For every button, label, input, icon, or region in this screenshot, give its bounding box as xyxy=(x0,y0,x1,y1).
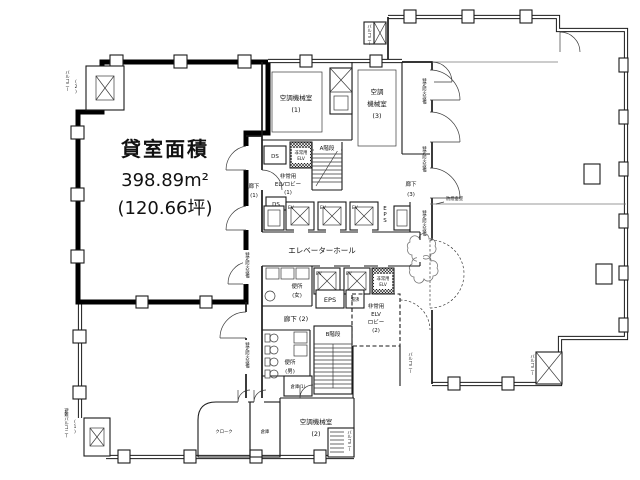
wc-women: 便所 (女) xyxy=(262,266,312,306)
machine-room-2-label: 空調機械室 xyxy=(300,417,333,426)
emergency-elv-label-2: ELV xyxy=(379,282,387,288)
fire-door-tag: 特定防火設備 xyxy=(422,77,427,105)
door-opening xyxy=(242,146,250,170)
ds-shaft xyxy=(330,68,352,114)
column xyxy=(136,296,148,308)
machine-room-1-number: (1) xyxy=(291,106,300,114)
escape-balcony-1: 避難バルコニー (1) xyxy=(64,407,111,456)
emergency-elv-label-1: 非常用 xyxy=(377,275,390,282)
machine-room-1-label: 空調機械室 xyxy=(280,93,313,102)
ev-label: EV xyxy=(320,205,326,211)
column xyxy=(118,450,130,463)
elevator-bank-top: EV EV EV EPS xyxy=(264,202,410,230)
unit-area-m2: 398.89m² xyxy=(121,170,209,191)
window xyxy=(300,55,312,67)
cloak-room: クローク xyxy=(198,390,250,457)
elevator-hall-label: エレベーターホール xyxy=(288,246,356,255)
lobby-1-number: (1) xyxy=(284,190,292,196)
balcony-tag: バルコニー xyxy=(408,352,413,374)
door-opening xyxy=(243,312,250,338)
fire-door-tag: 特定防火設備 xyxy=(245,341,250,369)
corridor-1-label: 廊下 xyxy=(248,182,260,190)
cloak-label: クローク xyxy=(215,429,232,435)
fire-door-tag: 特定防火設備 xyxy=(422,145,427,173)
column xyxy=(584,164,600,184)
fire-door-tags: 特定防火設備 特定防火設備 特定防火設備 xyxy=(420,76,429,244)
corridor-3-number: (3) xyxy=(407,192,415,198)
balcony-2-number: (2) xyxy=(74,79,79,95)
column xyxy=(619,266,628,280)
lobby-2-number: (2) xyxy=(372,328,380,334)
elevator-2: EV xyxy=(318,202,346,230)
emergency-elevator-2: 非常用 ELV xyxy=(372,268,394,294)
window xyxy=(73,330,86,343)
escape-balcony-number: (1) xyxy=(73,419,78,435)
unit-area-tsubo: (120.66坪) xyxy=(117,198,212,219)
machine-room-3: 空調 機械室 (3) xyxy=(358,70,396,146)
storage-label: 倉庫 xyxy=(261,428,270,435)
window xyxy=(238,55,251,68)
balcony-tag: バルコニー xyxy=(530,354,535,376)
column xyxy=(314,450,326,463)
door-opening xyxy=(242,206,250,230)
eps-label: EPS xyxy=(382,206,388,224)
machine-room-3-number: (3) xyxy=(372,112,381,120)
smoke-wall-annotation: 防煙垂壁 xyxy=(446,195,464,202)
core: 空調機械室 (1) 空調 機械室 (3) 廊下 (3) DS 非常用 ELV A… xyxy=(198,55,430,457)
machine-room-3-label-2: 機械室 xyxy=(367,99,387,108)
elevator-hall: エレベーターホール xyxy=(259,229,423,269)
machine-room-3-label-1: 空調 xyxy=(371,87,385,96)
right-wing: 防煙垂壁 特定防火設備 特定防火設備 特定防火設備 バルコニー バルコ xyxy=(364,10,628,390)
corridor-2-label: 廊下 (2) xyxy=(284,314,308,323)
stair-a: A階段 xyxy=(312,142,342,186)
column xyxy=(596,264,612,284)
stair-a-label: A階段 xyxy=(320,144,335,152)
corridor-3-label: 廊下 xyxy=(405,180,417,188)
window xyxy=(73,386,86,399)
door-opening xyxy=(259,170,265,190)
stair-b: B階段 xyxy=(314,326,352,394)
unit-area-title: 貸室面積 xyxy=(120,137,209,161)
eps-label: EPS xyxy=(324,296,336,304)
column xyxy=(184,450,196,463)
ev-label: EV xyxy=(316,271,322,277)
elevator-1: EV xyxy=(286,202,314,230)
column xyxy=(619,162,628,176)
corridor-3: 廊下 (3) xyxy=(405,180,417,198)
balcony-tag: バルコニー xyxy=(347,430,352,452)
corner-balcony-box: バルコニー xyxy=(530,352,563,384)
corridor-1-number: (1) xyxy=(250,193,258,199)
window xyxy=(174,55,187,68)
balcony-2-label: バルコニー xyxy=(65,70,70,92)
column xyxy=(502,377,514,390)
wc-men-number: (男) xyxy=(285,368,295,375)
column xyxy=(448,377,460,390)
wc-women-number: (女) xyxy=(292,291,302,299)
eps-room-2: EPS 湯沸 xyxy=(316,290,364,308)
balcony-tag: バルコニー xyxy=(367,24,372,46)
column xyxy=(520,10,532,23)
machine-room-1: 空調機械室 (1) xyxy=(272,72,322,132)
lobby-2-label-1: 非常用 xyxy=(368,302,385,310)
window xyxy=(71,250,84,263)
ds-label: DS xyxy=(271,154,279,160)
elevator-3: EV xyxy=(350,202,378,230)
window xyxy=(71,126,84,139)
emergency-elevator-1: 非常用 ELV xyxy=(290,142,312,168)
elv-lobby-1: 非常用 ELVロビー (1) xyxy=(275,172,301,196)
floor-plan-svg: 防煙垂壁 特定防火設備 特定防火設備 特定防火設備 バルコニー バルコ xyxy=(0,0,640,480)
door-opening xyxy=(428,240,434,310)
lobby-2-label-3: ロビー xyxy=(368,318,385,326)
wc-women-label: 便所 xyxy=(291,282,303,290)
column xyxy=(200,296,212,308)
column xyxy=(404,10,416,23)
top-balcony-box: バルコニー xyxy=(364,22,386,46)
storage-room: 倉庫 xyxy=(250,390,280,457)
lobby-1-label-2: ELVロビー xyxy=(275,180,301,188)
ds-room-1: DS xyxy=(264,146,286,164)
machine-room-2-number: (2) xyxy=(311,430,320,438)
door-opening xyxy=(428,112,434,142)
wc-men: 便所 (男) xyxy=(262,330,310,378)
balcony-2: バルコニー (2) xyxy=(65,66,125,110)
ev-label: EV xyxy=(288,205,294,211)
stair-b-label: B階段 xyxy=(326,330,341,338)
fire-door-tag: 特定防火設備 xyxy=(245,251,250,279)
lobby-1-label-1: 非常用 xyxy=(280,172,297,180)
emergency-elv-label-1: 非常用 xyxy=(295,149,308,156)
column xyxy=(619,110,628,124)
ev-label: EV xyxy=(346,271,352,277)
window xyxy=(71,188,84,201)
window xyxy=(370,55,382,67)
lobby-2-label-2: ELV xyxy=(371,312,381,318)
column xyxy=(619,318,628,332)
fire-door-tag: 特定防火設備 xyxy=(422,209,427,237)
column xyxy=(619,214,628,228)
escape-balcony-label: 避難バルコニー xyxy=(64,407,69,438)
emergency-elv-label-2: ELV xyxy=(297,156,305,162)
column xyxy=(619,58,628,72)
floor-plan-canvas: 防煙垂壁 特定防火設備 特定防火設備 特定防火設備 バルコニー バルコ xyxy=(0,0,640,480)
ev-label: EV xyxy=(352,205,358,211)
column xyxy=(462,10,474,23)
wc-men-label: 便所 xyxy=(284,358,296,366)
